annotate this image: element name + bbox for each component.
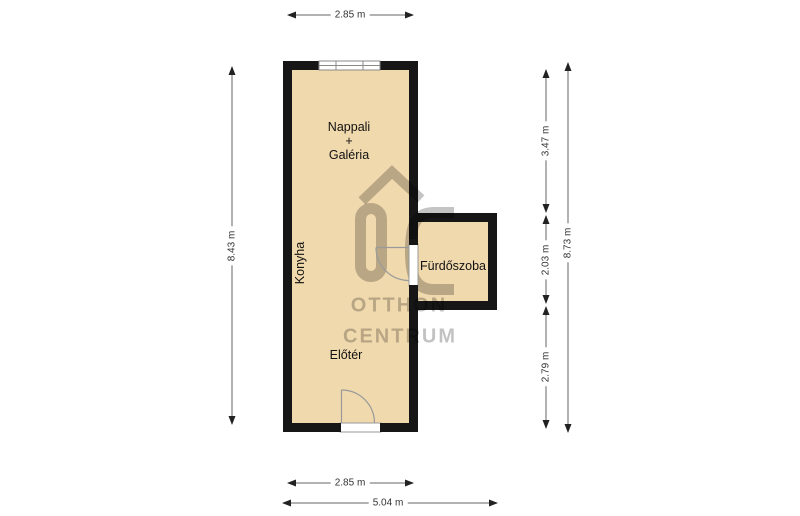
floorplan-graphics: [0, 0, 800, 516]
dimension-lines: [232, 15, 568, 503]
room-label-konyha: Konyha: [293, 242, 307, 284]
dim-label-right-upper: 3.47 m: [541, 122, 552, 161]
watermark-word-otthon: OTTHON: [351, 295, 447, 318]
dim-label-right-lower: 2.79 m: [541, 348, 552, 387]
room-label-eloter: Előtér: [330, 348, 363, 362]
room-label-nappali-line3: Galéria: [328, 148, 370, 162]
dim-label-left-height: 8.43 m: [227, 227, 238, 266]
floorplan-canvas: OTTHON CENTRUM Nappali + Galéria Konyha …: [0, 0, 800, 516]
room-label-furdoszoba: Fürdőszoba: [420, 259, 486, 273]
watermark-word-centrum: CENTRUM: [343, 326, 457, 349]
window-icon: [319, 61, 380, 70]
entrance-door-icon: [335, 390, 386, 432]
room-label-nappali-galeria: Nappali + Galéria: [328, 120, 370, 162]
dim-label-top-width: 2.85 m: [331, 10, 370, 21]
room-label-nappali-line2: +: [328, 134, 370, 148]
dim-label-right-middle: 2.03 m: [541, 241, 552, 280]
room-label-nappali-line1: Nappali: [328, 120, 370, 134]
dim-label-bottom-width: 2.85 m: [331, 478, 370, 489]
dim-label-right-total: 8.73 m: [563, 224, 574, 263]
dim-label-bottom-total: 5.04 m: [369, 498, 408, 509]
